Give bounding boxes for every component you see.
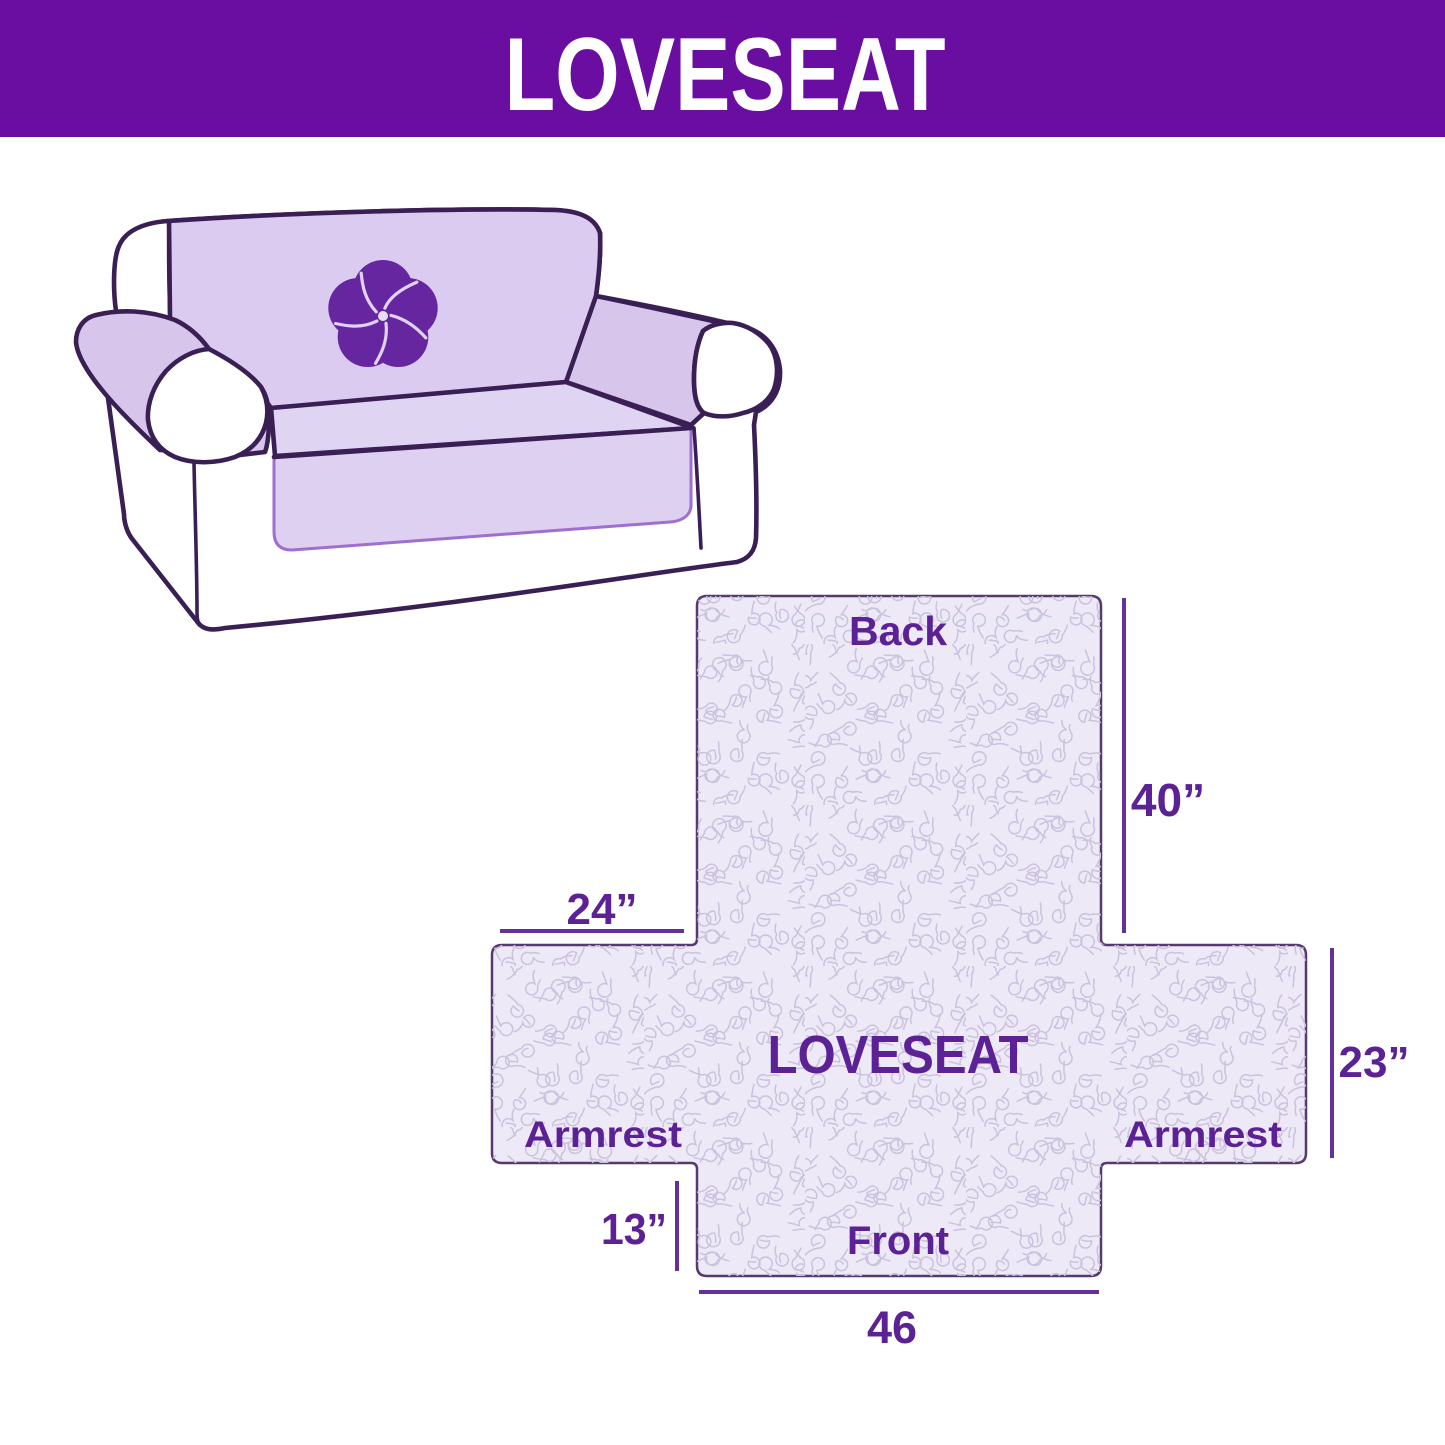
svg-text:46: 46 — [867, 1302, 917, 1353]
svg-text:23”: 23” — [1339, 1038, 1410, 1087]
svg-text:Armrest: Armrest — [524, 1114, 682, 1155]
svg-text:40”: 40” — [1131, 774, 1205, 826]
svg-text:13”: 13” — [601, 1205, 667, 1254]
svg-text:Armrest: Armrest — [1124, 1114, 1282, 1155]
svg-text:LOVESEAT: LOVESEAT — [505, 17, 946, 133]
svg-text:Front: Front — [847, 1219, 949, 1263]
svg-text:LOVESEAT: LOVESEAT — [768, 1025, 1029, 1085]
svg-text:Back: Back — [849, 608, 947, 654]
svg-text:24”: 24” — [567, 885, 638, 934]
